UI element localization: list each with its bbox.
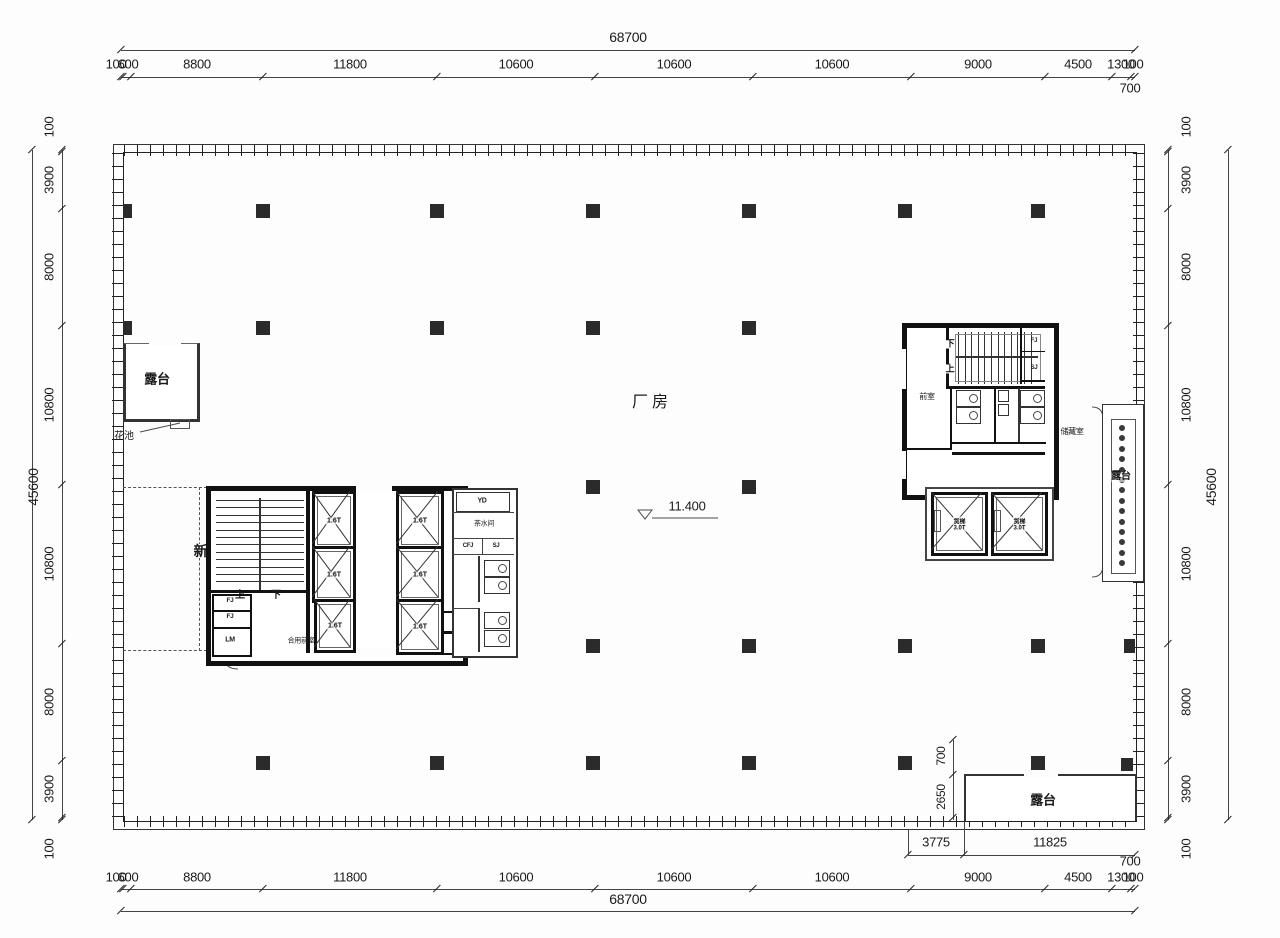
- wall-tick: [722, 816, 723, 827]
- elevator-shaft: 1.6T: [314, 599, 356, 653]
- wall-tick: [112, 556, 123, 557]
- wall-tick: [1133, 686, 1144, 687]
- dim-label: 10600: [815, 58, 850, 71]
- dimension-line: [121, 50, 1135, 51]
- wall-tick: [371, 145, 372, 156]
- wall-tick: [112, 621, 123, 622]
- elevator-capacity-label: 货梯3.0T: [1012, 517, 1026, 532]
- dim-label: 45600: [1204, 468, 1218, 505]
- wall-tick: [969, 145, 970, 156]
- wall-tick: [306, 816, 307, 827]
- column: [256, 321, 270, 335]
- tea-room-label: 茶水间: [474, 521, 494, 528]
- dim-label: 11800: [333, 58, 367, 71]
- wall-tick: [112, 166, 123, 167]
- wall-tick: [865, 816, 866, 827]
- wall-tick: [332, 816, 333, 827]
- partition: [482, 538, 483, 554]
- louver-dot: [1119, 446, 1125, 452]
- dim-label: 3775: [922, 836, 950, 849]
- elevator-shaft: 1.6T: [312, 491, 356, 550]
- wall-tick: [943, 816, 944, 827]
- wall-tick: [566, 145, 567, 156]
- wall-tick: [995, 145, 996, 156]
- wall-tick: [1133, 179, 1144, 180]
- dim-label: 600: [118, 58, 139, 71]
- wall-tick: [852, 145, 853, 156]
- wall-tick: [761, 145, 762, 156]
- column: [742, 756, 756, 770]
- wall-tick: [1133, 231, 1144, 232]
- wall-tick: [501, 145, 502, 156]
- wall-tick: [579, 145, 580, 156]
- wall-tick: [345, 145, 346, 156]
- column: [742, 480, 756, 494]
- wall-tick: [956, 145, 957, 156]
- wall-tick: [124, 145, 125, 156]
- dim-label: LM: [225, 637, 235, 644]
- wall-tick: [384, 816, 385, 827]
- wall-tick: [112, 647, 123, 648]
- column: [430, 756, 444, 770]
- wall-tick: [1133, 270, 1144, 271]
- elevator-capacity-label: 1.6T: [326, 571, 342, 578]
- wall-tick: [112, 348, 123, 349]
- wall-tick: [709, 145, 710, 156]
- column: [430, 321, 444, 335]
- wall-tick: [293, 816, 294, 827]
- wall-tick: [1133, 764, 1144, 765]
- flower-bed-planter: [170, 419, 190, 429]
- wc-fixture: [1033, 394, 1042, 403]
- wall-tick: [1133, 634, 1144, 635]
- dim-label: 11825: [1033, 836, 1067, 849]
- wall-tick: [1125, 145, 1126, 156]
- elevator-capacity-label: 1.6T: [412, 571, 428, 578]
- wc-fixture: [969, 394, 978, 403]
- wall-tick: [449, 145, 450, 156]
- dim-label: 8800: [183, 871, 211, 884]
- wall-tick: [358, 816, 359, 827]
- wall-tick: [1047, 145, 1048, 156]
- wall-tick: [112, 803, 123, 804]
- dim-label: 4500: [1064, 871, 1092, 884]
- wall-tick: [397, 816, 398, 827]
- wall-tick: [852, 816, 853, 827]
- dashed-line: [199, 487, 200, 651]
- wall-tick: [722, 145, 723, 156]
- dim-label: 9000: [964, 871, 992, 884]
- wall-tick: [124, 816, 125, 827]
- dim-label: 3900: [43, 166, 56, 194]
- wall-tick: [1133, 192, 1144, 193]
- wall-tick: [112, 335, 123, 336]
- dim-label: 3900: [1180, 166, 1193, 194]
- column: [742, 639, 756, 653]
- wall-tick: [112, 153, 123, 154]
- wall-tick: [215, 816, 216, 827]
- wall-column: [123, 204, 132, 218]
- wall-tick: [112, 790, 123, 791]
- wall-tick: [384, 145, 385, 156]
- wall-tick: [202, 816, 203, 827]
- partition: [903, 448, 952, 450]
- wall-tick: [1133, 608, 1144, 609]
- dim-label: 700: [1120, 855, 1141, 868]
- wall-tick: [527, 145, 528, 156]
- wall-tick: [592, 145, 593, 156]
- wall-column: [1121, 758, 1133, 771]
- wall-tick: [189, 145, 190, 156]
- partition: [950, 442, 1046, 444]
- wall-tick: [618, 145, 619, 156]
- dim-label: 700: [1120, 82, 1141, 95]
- wall-tick: [1086, 145, 1087, 156]
- wall-tick: [696, 145, 697, 156]
- wc-fixture: [498, 564, 507, 573]
- core-partition: [1020, 327, 1022, 384]
- wall-tick: [1133, 621, 1144, 622]
- dim-label: 10800: [43, 388, 56, 423]
- wall-tick: [112, 595, 123, 596]
- dim-label: 100: [1180, 117, 1193, 138]
- wall-tick: [449, 816, 450, 827]
- flower-bed-label: 花池: [114, 432, 133, 442]
- column: [586, 480, 600, 494]
- wall-tick: [878, 816, 879, 827]
- vestibule-label: 前室: [919, 393, 934, 401]
- dim-label: 100: [43, 117, 56, 138]
- wall-tick: [112, 309, 123, 310]
- wall-tick: [1112, 145, 1113, 156]
- wall-tick: [163, 816, 164, 827]
- column: [1031, 204, 1045, 218]
- dim-label: 10600: [815, 871, 850, 884]
- stair-landing: [955, 334, 1041, 382]
- louver-dot: [1119, 550, 1125, 556]
- wall-tick: [540, 816, 541, 827]
- wall-tick: [956, 816, 957, 827]
- stair-up-label: 上: [946, 365, 955, 374]
- dim-label: SJ: [493, 543, 500, 549]
- wall-tick: [1133, 218, 1144, 219]
- wall-tick: [137, 816, 138, 827]
- wall-tick: [112, 530, 123, 531]
- dim-label: FJ: [1031, 338, 1037, 344]
- wall-tick: [112, 231, 123, 232]
- dim-label: 10800: [1180, 547, 1193, 582]
- dim-label: 10600: [499, 871, 534, 884]
- wall-tick: [1133, 712, 1144, 713]
- wall-tick: [813, 145, 814, 156]
- wall-tick: [1133, 166, 1144, 167]
- louver-dot: [1119, 425, 1125, 431]
- dimension-line: [964, 818, 965, 855]
- wall-tick: [112, 699, 123, 700]
- dim-label: 10800: [1180, 388, 1193, 423]
- wall-tick: [410, 145, 411, 156]
- core-partition: [209, 590, 308, 593]
- dim-label: 600: [118, 871, 139, 884]
- elevator-capacity-label: 货梯: [1013, 517, 1025, 526]
- wall-tick: [112, 478, 123, 479]
- wall-tick: [1133, 205, 1144, 206]
- wall-column: [1124, 639, 1135, 653]
- dimension-line: [1228, 150, 1229, 820]
- dim-label: 8000: [43, 688, 56, 716]
- wall-tick: [436, 816, 437, 827]
- wall-tick: [112, 634, 123, 635]
- wall-tick: [1133, 400, 1144, 401]
- dim-label: 100: [43, 839, 56, 860]
- wall-tick: [358, 145, 359, 156]
- wall-tick: [112, 426, 123, 427]
- column: [586, 756, 600, 770]
- wall-tick: [112, 192, 123, 193]
- dim-label: 68700: [609, 892, 646, 906]
- elevator-capacity-label: 1.6T: [326, 517, 342, 524]
- wall-tick: [657, 145, 658, 156]
- elevator-shaft: 1.6T: [396, 546, 444, 603]
- wall-tick: [163, 145, 164, 156]
- louver-dot: [1119, 519, 1125, 525]
- wall-tick: [982, 145, 983, 156]
- wall-tick: [514, 145, 515, 156]
- wall-tick: [488, 145, 489, 156]
- core-partition: [950, 388, 952, 450]
- elevator-capacity-label: 3.0T: [1013, 526, 1025, 532]
- door-opening: [1024, 771, 1058, 778]
- wall-tick: [943, 145, 944, 156]
- wall-tick: [112, 725, 123, 726]
- shared-vestibule-label: 合用前室: [288, 638, 315, 645]
- wall-tick: [319, 145, 320, 156]
- wall-tick: [112, 205, 123, 206]
- wall-tick: [683, 816, 684, 827]
- wall-tick: [112, 751, 123, 752]
- wall-tick: [748, 816, 749, 827]
- wall-tick: [1133, 374, 1144, 375]
- wall-tick: [1133, 673, 1144, 674]
- wc-fixture: [1033, 411, 1042, 420]
- elevator-capacity-label: 1.6T: [412, 624, 428, 631]
- wc-fixture: [498, 581, 507, 590]
- partition: [452, 554, 514, 555]
- wall-tick: [1133, 582, 1144, 583]
- wall-tick: [579, 816, 580, 827]
- dim-label: 9000: [964, 58, 992, 71]
- wall-tick: [215, 145, 216, 156]
- wall-tick: [683, 145, 684, 156]
- dimension-line: [908, 830, 909, 855]
- wall-tick: [787, 145, 788, 156]
- wall-tick: [112, 608, 123, 609]
- wc-fixture: [498, 634, 507, 643]
- dimension-line: [121, 77, 1135, 78]
- wall-tick: [592, 816, 593, 827]
- wall-tick: [787, 816, 788, 827]
- wall-tick: [112, 517, 123, 518]
- dim-label: 100: [1180, 839, 1193, 860]
- wall-tick: [112, 543, 123, 544]
- dashed-line: [123, 650, 207, 651]
- wall-tick: [112, 283, 123, 284]
- door-opening: [899, 451, 906, 479]
- wall-tick: [488, 816, 489, 827]
- wall-tick: [527, 816, 528, 827]
- wall-tick: [241, 145, 242, 156]
- wall-tick: [202, 145, 203, 156]
- wall-tick: [475, 145, 476, 156]
- elevator-capacity-label: 货梯3.0T: [952, 517, 966, 532]
- wall-tick: [1008, 145, 1009, 156]
- column: [742, 321, 756, 335]
- dim-label: 8000: [1180, 253, 1193, 281]
- wall-tick: [826, 816, 827, 827]
- dim-label: 10600: [657, 58, 692, 71]
- partition: [1020, 380, 1045, 382]
- wall-tick: [254, 145, 255, 156]
- wall-tick: [112, 764, 123, 765]
- wall-tick: [112, 361, 123, 362]
- door-opening: [149, 340, 181, 346]
- wall-tick: [605, 145, 606, 156]
- wall-tick: [112, 673, 123, 674]
- wall-tick: [332, 145, 333, 156]
- elevator-door-slot: [934, 510, 941, 532]
- wall-tick: [644, 145, 645, 156]
- wall-tick: [1133, 738, 1144, 739]
- wall-tick: [1133, 725, 1144, 726]
- wall-tick: [397, 145, 398, 156]
- wall-tick: [112, 777, 123, 778]
- wall-tick: [228, 145, 229, 156]
- dimension-line: [121, 911, 1135, 912]
- wall-tick: [826, 145, 827, 156]
- wall-tick: [696, 816, 697, 827]
- dim-label: 700: [935, 746, 947, 765]
- wall-tick: [306, 145, 307, 156]
- wall-tick: [917, 145, 918, 156]
- terrace-label: 露台: [144, 373, 169, 386]
- partition: [478, 556, 480, 602]
- wall-tick: [1133, 699, 1144, 700]
- wall-tick: [423, 816, 424, 827]
- wall-tick: [345, 816, 346, 827]
- dim-label: 8800: [183, 58, 211, 71]
- wall-tick: [904, 145, 905, 156]
- dim-label: 4500: [1064, 58, 1092, 71]
- terrace-label: 露台: [1111, 472, 1130, 482]
- core-partition: [946, 327, 949, 389]
- wall-tick: [1133, 309, 1144, 310]
- wall-tick: [112, 296, 123, 297]
- wall-tick: [176, 816, 177, 827]
- wall-tick: [462, 145, 463, 156]
- wall-tick: [1133, 751, 1144, 752]
- wall-tick: [436, 145, 437, 156]
- column: [1031, 756, 1045, 770]
- elevator-capacity-label: 货梯: [953, 517, 965, 526]
- dim-label: FJ: [227, 614, 234, 621]
- column: [586, 321, 600, 335]
- dimension-line: [953, 740, 954, 820]
- wall-tick: [930, 145, 931, 156]
- column: [256, 204, 270, 218]
- column: [742, 204, 756, 218]
- dim-label: 10600: [657, 871, 692, 884]
- wall-tick: [566, 816, 567, 827]
- column: [1031, 639, 1045, 653]
- wall-tick: [112, 582, 123, 583]
- wall-tick: [1133, 244, 1144, 245]
- dim-label: 3900: [1180, 775, 1193, 803]
- core-partition: [994, 388, 996, 444]
- wall-tick: [267, 816, 268, 827]
- wall-tick: [709, 816, 710, 827]
- dim-label: 10600: [499, 58, 534, 71]
- wall-tick: [1034, 145, 1035, 156]
- wall-tick: [1099, 145, 1100, 156]
- wall-tick: [112, 179, 123, 180]
- wall-tick: [670, 145, 671, 156]
- wall-tick: [112, 491, 123, 492]
- dim-label: 100: [1123, 871, 1144, 884]
- dimension-line: [908, 855, 1135, 856]
- wall-tick: [501, 816, 502, 827]
- wall-tick: [1133, 322, 1144, 323]
- dim-label: 68700: [609, 30, 646, 44]
- stair-down-label: 下: [946, 340, 955, 349]
- dim-label: 3900: [43, 775, 56, 803]
- wall-tick: [475, 816, 476, 827]
- column: [586, 204, 600, 218]
- wall-tick: [618, 816, 619, 827]
- wall-tick: [1133, 660, 1144, 661]
- elevation-label: 11.400: [669, 500, 706, 513]
- louver-dot: [1119, 529, 1125, 535]
- partition: [952, 452, 1045, 455]
- wall-tick: [241, 816, 242, 827]
- wall-tick: [112, 244, 123, 245]
- dim-label: YD: [477, 498, 486, 505]
- dim-label: FJ: [227, 598, 234, 605]
- partition: [478, 608, 480, 652]
- wall-tick: [1133, 361, 1144, 362]
- dim-label: 45600: [26, 468, 40, 505]
- door-opening: [899, 349, 906, 389]
- partition: [452, 538, 514, 539]
- floor-plan-canvas: 1001006006008800880011800118001060010600…: [0, 0, 1280, 938]
- wall-tick: [112, 738, 123, 739]
- dashed-line: [123, 487, 207, 488]
- wall-tick: [553, 816, 554, 827]
- dim-label: 100: [1123, 58, 1144, 71]
- storage-room-label: 储藏室: [1060, 428, 1083, 436]
- wc-fixture: [498, 616, 507, 625]
- wall-tick: [462, 816, 463, 827]
- wall-tick: [112, 465, 123, 466]
- wall-tick: [514, 816, 515, 827]
- elevator-capacity-label: 3.0T: [953, 526, 965, 532]
- wall-tick: [1133, 348, 1144, 349]
- wall-tick: [735, 816, 736, 827]
- dimension-line: [121, 889, 1135, 890]
- wall-tick: [112, 218, 123, 219]
- wall-tick: [631, 816, 632, 827]
- wall-tick: [176, 145, 177, 156]
- wall-tick: [150, 145, 151, 156]
